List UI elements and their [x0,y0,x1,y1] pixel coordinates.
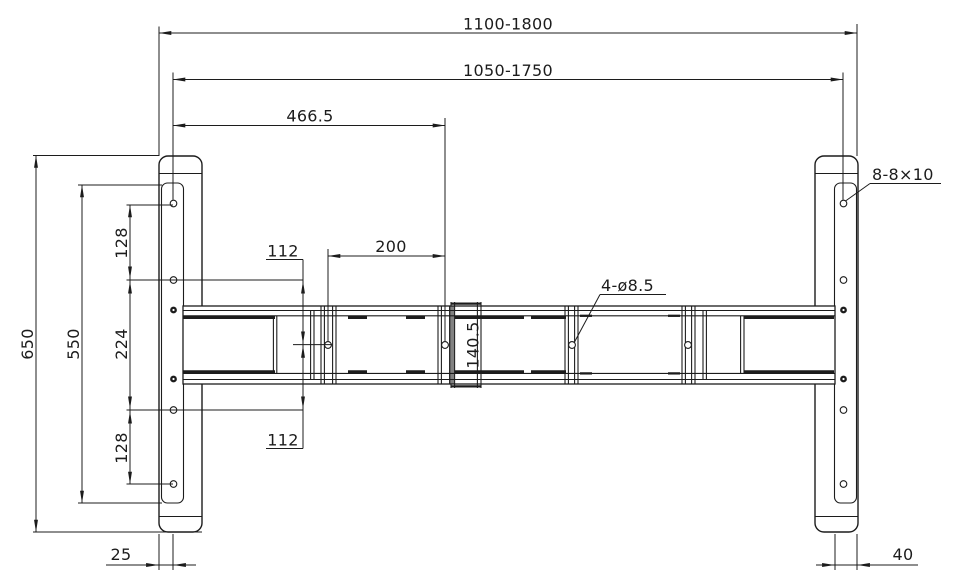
plate-hole-center [842,378,844,380]
plate-hole [840,407,847,414]
plate-hole [840,481,847,488]
upper-center-offset-dimension: 112 [267,242,298,261]
beam-hole-offset-dimension: 466.5 [286,107,333,126]
foot-offset-left-dimension: 25 [111,545,132,564]
plate-pitch-lower-dimension: 128 [112,432,131,463]
crossbeam [183,302,835,388]
left-mount-plate [162,183,184,503]
plate-hole-center [842,309,844,311]
overall-width-dimension: 1100-1800 [463,15,553,34]
plate-pitch-upper-dimension: 128 [112,227,131,258]
lower-center-offset-dimension: 112 [267,431,298,450]
right-mount-plate [835,183,857,503]
beam-width-dimension: 140.5 [464,321,483,368]
foot-length-dimension: 650 [18,328,37,359]
beam-hole [569,342,576,349]
foot-offset-right-dimension: 40 [893,545,914,564]
foot-slots-callout: 8-8×10 [872,165,934,184]
technical-drawing-canvas: 1100-1800 1050-1750 466.5 200 112 112 [0,0,959,585]
plate-hole [170,200,177,207]
beam-hole-spacing-dimension: 200 [375,237,406,256]
beam-hole [442,342,449,349]
plate-hole-center [172,378,174,380]
beam-holes-callout: 4-ø8.5 [601,276,654,295]
plate-hole [840,277,847,284]
plate-hole-span-dimension: 550 [64,328,83,359]
beam-hole [685,342,692,349]
dimensions: 1100-1800 1050-1750 466.5 200 112 112 [18,15,941,571]
plate-pitch-middle-dimension: 224 [112,328,131,359]
plate-hole-center [172,309,174,311]
inner-span-dimension: 1050-1750 [463,61,553,80]
desk-frame-dimension-drawing: 1100-1800 1050-1750 466.5 200 112 112 [0,0,959,585]
